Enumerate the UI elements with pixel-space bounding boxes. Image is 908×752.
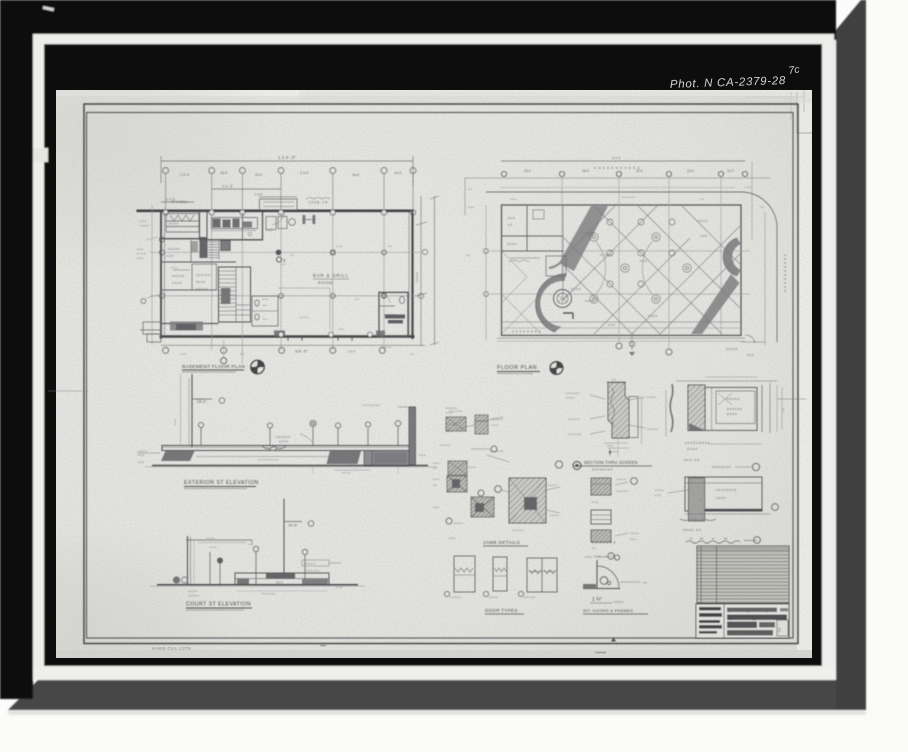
svg-text:x x x: x x x — [173, 418, 177, 425]
svg-text:x x x x x x: x x x x x x — [306, 569, 320, 573]
svg-text:x x: x x — [433, 483, 437, 487]
svg-text:x x x: x x x — [592, 500, 599, 504]
svg-text:x x x x x: x x x x x — [568, 417, 579, 421]
svg-text:x x x x: x x x x — [507, 242, 516, 246]
svg-text:19'-0": 19'-0" — [288, 524, 298, 528]
svg-text:x x x x x: x x x x x — [168, 247, 180, 251]
svg-text:x x x: x x x — [594, 555, 601, 559]
svg-text:x x: x x — [248, 542, 252, 546]
svg-text:x x x: x x x — [700, 234, 707, 238]
svg-text:x x x x x: x x x x x — [647, 427, 658, 431]
svg-text:2: 2 — [778, 628, 781, 634]
svg-text:x x x: x x x — [747, 353, 754, 357]
svg-text:x x x: x x x — [468, 205, 475, 209]
svg-text:x x x x: x x x x — [489, 595, 498, 599]
svg-text:x x: x x — [468, 187, 472, 191]
svg-text:FLOOR PLAN: FLOOR PLAN — [497, 365, 537, 371]
svg-text:x x x x: x x x x — [140, 224, 149, 228]
svg-text:x x x: x x x — [336, 244, 343, 248]
svg-text:x x x x: x x x x — [698, 219, 707, 223]
svg-text:1 ¾": 1 ¾" — [592, 597, 602, 603]
svg-text:x x x x: x x x x — [614, 600, 623, 604]
svg-text:x x x: x x x — [210, 545, 217, 549]
svg-text:x x: x x — [240, 352, 244, 356]
svg-text:x x x: x x x — [449, 536, 456, 540]
svg-text:x x x: x x x — [433, 505, 440, 509]
svg-text:x x x x x x: x x x x x x — [262, 592, 276, 596]
svg-text:x x x x x: x x x x x — [727, 397, 740, 401]
svg-text:x x x x: x x x x — [206, 536, 215, 540]
svg-text:x x x: x x x — [266, 228, 273, 232]
svg-text:x x x: x x x — [446, 429, 453, 433]
svg-text:x x x x x x x x: x x x x x x x x — [512, 330, 541, 334]
svg-text:x x x: x x x — [492, 423, 499, 427]
svg-text:x x x x x: x x x x x — [440, 443, 451, 447]
svg-text:x x x x: x x x x — [566, 396, 575, 400]
svg-text:x x: x x — [781, 408, 785, 412]
svg-text:x x x: x x x — [338, 327, 345, 331]
svg-text:x x x x x: x x x x x — [726, 347, 738, 351]
svg-text:INT. DOORS & FRAMES: INT. DOORS & FRAMES — [583, 608, 633, 613]
svg-text:x x x x: x x x x — [585, 231, 594, 235]
svg-text:x x x x: x x x x — [172, 281, 182, 285]
svg-text:x x x x . x x: x x x x . x x — [682, 528, 701, 532]
svg-text:x x x: x x x — [612, 155, 620, 160]
svg-text:x x x x: x x x x — [342, 471, 351, 475]
svg-text:x x x x x x: x x x x x x — [568, 432, 582, 436]
svg-text:x x x x x x: x x x x x x — [566, 391, 580, 395]
svg-text:x x: x x — [410, 352, 414, 356]
svg-text:x x: x x — [643, 581, 647, 585]
svg-text:22-0: 22-0 — [636, 169, 643, 173]
svg-text:x x x x x x x x x: x x x x x x x x x — [258, 458, 279, 462]
svg-text:x x x x: x x x x — [647, 395, 656, 399]
svg-text:x x x x: x x x x — [548, 483, 557, 487]
svg-text:x x x: x x x — [612, 450, 619, 454]
svg-text:x x: x x — [466, 253, 470, 257]
svg-text:16-0: 16-0 — [220, 171, 227, 175]
svg-text:x x x: x x x — [433, 477, 440, 481]
svg-text:x x: x x — [508, 223, 512, 227]
svg-text:x x x x: x x x x — [727, 412, 737, 416]
svg-text:x x: x x — [433, 466, 437, 470]
svg-text:x x x x x: x x x x x — [617, 489, 628, 493]
svg-text:BAR & GRILL: BAR & GRILL — [313, 273, 349, 278]
svg-text:x x: x x — [760, 205, 764, 209]
svg-text:2 3'- 4": 2 3'- 4" — [222, 185, 234, 189]
svg-text:x x x x x x: x x x x x x — [449, 409, 463, 413]
svg-text:1 3 2 6 - 7 0: 1 3 2 6 - 7 0 — [308, 201, 327, 205]
svg-text:x x x: x x x — [419, 453, 426, 457]
svg-text:3 6'- 0": 3 6'- 0" — [295, 349, 308, 354]
svg-text:x x x x: x x x x — [300, 315, 309, 319]
svg-text:24-0: 24-0 — [352, 173, 359, 177]
svg-text:x x x x x: x x x x x — [450, 595, 461, 599]
svg-text:x x x: x x x — [508, 216, 515, 220]
svg-text:20-0: 20-0 — [255, 173, 262, 177]
svg-text:x x x: x x x — [336, 585, 343, 589]
svg-text:2 4-0: 2 4-0 — [300, 171, 308, 175]
svg-text:x x: x x — [700, 197, 704, 201]
svg-text:19'-0": 19'-0" — [197, 400, 207, 404]
svg-text:x x x x: x x x x — [196, 280, 205, 284]
svg-text:x x x: x x x — [630, 537, 637, 541]
svg-text:x x x x x x x x: x x x x x x x x — [362, 403, 380, 407]
svg-text:x x x x x x: x x x x x x — [490, 449, 504, 453]
svg-text:x x x: x x x — [348, 350, 355, 354]
svg-text:x x x x x: x x x x x — [600, 253, 612, 257]
svg-text:x x x: x x x — [276, 581, 283, 585]
svg-text:x x x x: x x x x — [279, 440, 288, 444]
svg-text:x x x: x x x — [745, 185, 752, 189]
svg-text:22-0: 22-0 — [687, 169, 694, 173]
svg-text:x x x x: x x x x — [715, 496, 726, 500]
svg-text:x x x x x: x x x x x — [524, 595, 535, 599]
svg-text:2 1'-0: 2 1'-0 — [166, 198, 175, 202]
svg-text:x x x x x: x x x x x — [492, 417, 503, 421]
svg-text:x x x x x x x x x x x: x x x x x x x x x x x — [594, 166, 640, 170]
svg-text:x x x: x x x — [138, 460, 145, 464]
svg-text:x x x: x x x — [137, 247, 144, 251]
svg-text:HABS CAL-2379: HABS CAL-2379 — [152, 646, 191, 651]
svg-text:x x x x x x x x x x: x x x x x x x x x x — [783, 254, 787, 292]
svg-text:x x x x x x x: x x x x x x x — [592, 541, 616, 545]
svg-text:x x: x x — [592, 546, 596, 550]
svg-text:25-0: 25-0 — [524, 169, 531, 173]
svg-text:x x x: x x x — [167, 254, 174, 258]
svg-text:x x x x x x x x: x x x x x x x x — [715, 488, 736, 492]
svg-text:x x x: x x x — [171, 266, 178, 270]
svg-text:x x: x x — [263, 303, 267, 307]
svg-text:x x x x: x x x x — [446, 422, 455, 426]
svg-text:x x x: x x x — [585, 555, 592, 559]
svg-text:x x: x x — [290, 253, 294, 257]
svg-text:14-0: 14-0 — [394, 171, 401, 175]
svg-text:x x x x: x x x x — [137, 252, 146, 256]
svg-text:1 2 4'- 0": 1 2 4'- 0" — [278, 155, 296, 160]
svg-text:x x x x x: x x x x x — [188, 594, 199, 598]
svg-text:11-0: 11-0 — [727, 169, 734, 173]
svg-text:x x x: x x x — [262, 297, 269, 301]
svg-text:2 4'-0: 2 4'-0 — [180, 173, 189, 177]
svg-text:COURT ST ELEVATION: COURT ST ELEVATION — [186, 602, 251, 608]
svg-text:x x x x x x x x: x x x x x x x x — [592, 468, 612, 472]
svg-text:x x: x x — [388, 244, 392, 248]
svg-text:x x x: x x x — [180, 352, 187, 356]
svg-text:BASEMENT FLOOR PLAN: BASEMENT FLOOR PLAN — [182, 364, 245, 370]
svg-text:x x x: x x x — [510, 197, 517, 201]
svg-text:x x x: x x x — [655, 493, 662, 497]
svg-text:x x x x x: x x x x x — [172, 274, 185, 278]
svg-text:x x x x: x x x x — [169, 222, 178, 226]
svg-text:x x x x: x x x x — [648, 314, 657, 318]
svg-text:x x x x: x x x x — [686, 447, 697, 451]
svg-text:x x x: x x x — [608, 323, 615, 327]
svg-text:DOOR TYPES: DOOR TYPES — [485, 608, 518, 613]
svg-text:x x x x x: x x x x x — [304, 562, 315, 566]
svg-text:x x x x x x x: x x x x x x x — [711, 465, 731, 469]
svg-text:x x x x: x x x x — [617, 477, 626, 481]
svg-text:x x x x x x: x x x x x x — [727, 407, 742, 411]
svg-text:x x x x: x x x x — [585, 299, 594, 303]
svg-text:x x x x x x: x x x x x x — [622, 195, 636, 199]
svg-text:x x x: x x x — [607, 444, 614, 448]
svg-text:x x x x: x x x x — [454, 521, 463, 525]
svg-text:SECTION THRU SCREEN: SECTION THRU SCREEN — [584, 460, 638, 465]
svg-text:ROOM: ROOM — [318, 280, 333, 285]
svg-text:x x x x: x x x x — [188, 589, 197, 593]
svg-text:x x x x x x: x x x x x x — [276, 435, 290, 439]
svg-text:x x x x: x x x x — [415, 272, 419, 282]
svg-text:x x x x: x x x x — [630, 531, 639, 535]
svg-text:x x x: x x x — [385, 345, 392, 349]
svg-text:x x x 2 x 4 x x x: x x x 2 x 4 x x x — [684, 441, 710, 445]
svg-text:x x x: x x x — [433, 461, 440, 465]
svg-text:EXTERIOR ST ELEVATION: EXTERIOR ST ELEVATION — [184, 480, 259, 486]
svg-text:x x x x x x: x x x x x x — [196, 273, 210, 277]
svg-text:x x x: x x x — [469, 465, 476, 469]
svg-text:25-0: 25-0 — [582, 169, 589, 173]
svg-text:x x: x x — [263, 317, 267, 321]
svg-text:x x x x x: x x x x x — [512, 528, 523, 532]
svg-text:x x x x: x x x x — [550, 513, 559, 517]
svg-text:x x x . x x: x x x . x x — [683, 458, 699, 462]
svg-text:x x: x x — [612, 378, 616, 382]
svg-text:1 0-0: 1 0-0 — [254, 193, 262, 197]
svg-text:x x: x x — [355, 297, 359, 301]
svg-text:x x x: x x x — [140, 219, 147, 223]
svg-text:JAMB DETAILS: JAMB DETAILS — [483, 540, 520, 545]
svg-text:x x x x: x x x x — [655, 488, 664, 492]
svg-text:x x x: x x x — [137, 256, 144, 260]
svg-text:x x x: x x x — [138, 453, 145, 457]
